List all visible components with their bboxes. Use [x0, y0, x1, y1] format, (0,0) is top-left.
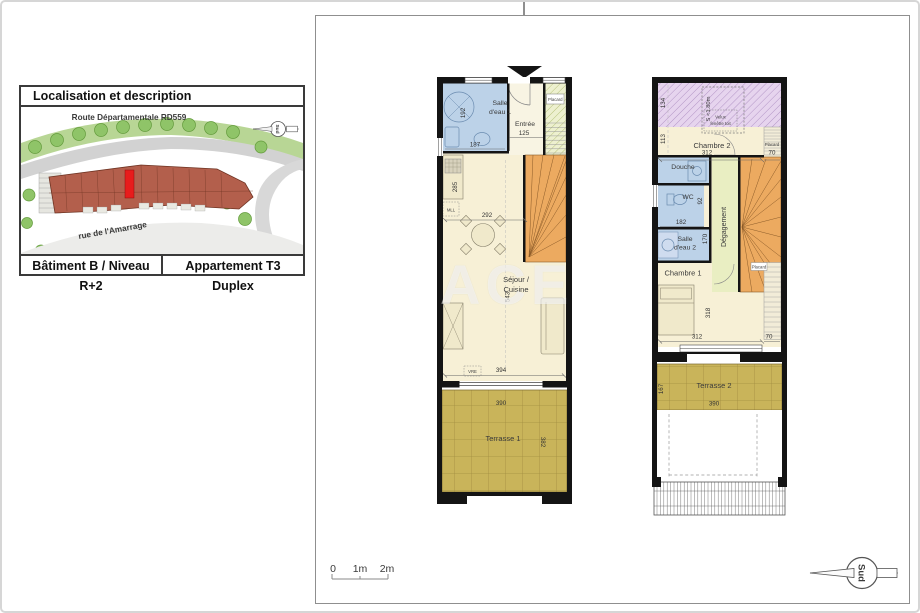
- scale-tick-label: 0: [330, 563, 336, 575]
- window-left-wall: [437, 138, 443, 156]
- vre-label: VRE: [468, 369, 477, 374]
- room-label: d'eau 1: [489, 109, 511, 116]
- south-compass-icon: Sud: [808, 548, 904, 598]
- room-label: Séjour /: [503, 275, 530, 284]
- railing-strip: [652, 477, 787, 515]
- location-panel-footer: Bâtiment B / Niveau R+2 Appartement T3 D…: [21, 254, 303, 276]
- room-label: Dégagement: [721, 207, 728, 247]
- drawing-sheet-frame: [315, 15, 910, 604]
- map-road-right: [255, 159, 303, 237]
- bed-chambre1: [658, 285, 694, 335]
- dimension-label: 167: [658, 383, 665, 394]
- placard-label: Placard: [548, 97, 563, 102]
- velux-label: Velux: [715, 115, 726, 120]
- dimension-label: 390: [709, 401, 720, 408]
- dimension-label: 92: [697, 197, 704, 204]
- map-compass-label: Sud: [274, 124, 280, 133]
- window-top-right: [543, 78, 565, 84]
- map-road-label: Route Départamentale RD559: [72, 113, 187, 122]
- map-apartment-marker: [125, 170, 134, 198]
- dimension-label: 187: [470, 142, 481, 149]
- sofa-right: [541, 298, 564, 354]
- window-top-left: [465, 78, 492, 84]
- terrace-opening-lower: [467, 496, 542, 504]
- placard-shelves-chambre1: [764, 263, 781, 340]
- dimension-label: 382: [539, 437, 546, 448]
- site-map-svg: Route Départamentale RD559 rue de l'Amar…: [21, 107, 303, 254]
- entree-floor: [507, 83, 545, 155]
- building-level-label: Bâtiment B / Niveau R+2: [21, 256, 161, 276]
- location-panel-title: Localisation et description: [21, 87, 303, 107]
- dimension-label: 394: [496, 367, 507, 374]
- dimension-label: 292: [482, 212, 493, 219]
- map-building: [49, 165, 253, 213]
- room-label: WC: [682, 194, 693, 201]
- dimension-label: 312: [702, 150, 713, 157]
- room-label: Salle: [677, 236, 692, 243]
- dimension-label: 125: [519, 130, 530, 137]
- room-label: Terrasse 1: [485, 434, 520, 443]
- dimension-label: 170: [702, 233, 709, 244]
- dimension-label: 312: [692, 334, 703, 341]
- washer-label: MLL: [447, 208, 456, 213]
- room-label: Salle: [492, 100, 507, 107]
- floor-plan-upper-level: 134 113 S <1.80m Velux fenêtre toit Cham…: [652, 77, 787, 522]
- dimension-label: 134: [660, 97, 667, 108]
- room-label: Douche: [671, 164, 695, 171]
- cabinet-left: [443, 303, 463, 349]
- velux-label: fenêtre toit: [710, 121, 731, 126]
- room-label: Terrasse 2: [696, 381, 731, 390]
- plan-sheet-page: Localisation et description: [0, 0, 920, 613]
- entrance-door-gap: [508, 77, 530, 84]
- location-panel: Localisation et description: [19, 85, 305, 276]
- placard-label: Placard: [765, 142, 780, 147]
- dimension-label: 285: [452, 181, 459, 192]
- stairs-lower: [525, 155, 566, 262]
- placard-label: Placard: [752, 265, 767, 270]
- void-below: [657, 410, 782, 482]
- scale-bar: 0 1m 2m: [320, 558, 404, 586]
- attic-height-label: S <1.80m: [706, 96, 712, 121]
- dimension-label: 390: [496, 400, 507, 407]
- dimension-label: 70: [769, 150, 776, 157]
- room-label: Cuisine: [503, 285, 528, 294]
- room-label: d'eau 2: [674, 245, 696, 252]
- room-label: Entrée: [515, 121, 535, 128]
- scale-tick-label: 1m: [353, 563, 368, 575]
- bay-window-upper: [652, 345, 787, 362]
- scale-tick-label: 2m: [380, 563, 395, 575]
- room-label: Chambre 1: [664, 269, 701, 278]
- floor-plan-lower-level: Salle d'eau 1 192 187 Entrée 125 Placard…: [437, 65, 572, 512]
- site-map: Route Départamentale RD559 rue de l'Amar…: [21, 107, 303, 254]
- apartment-type-label: Appartement T3 Duplex: [161, 256, 303, 276]
- compass-label: Sud: [856, 564, 867, 582]
- window-left-wall-upper: [652, 185, 658, 207]
- sheet-top-tick: [523, 2, 525, 16]
- dimension-label: 70: [766, 334, 773, 341]
- bay-window-lower: [437, 381, 572, 388]
- dimension-label: 113: [660, 134, 667, 144]
- dimension-label: 192: [460, 107, 467, 118]
- dimension-label: 318: [705, 307, 712, 318]
- entrance-arrow-icon: [507, 66, 542, 78]
- dimension-label: 182: [676, 219, 687, 226]
